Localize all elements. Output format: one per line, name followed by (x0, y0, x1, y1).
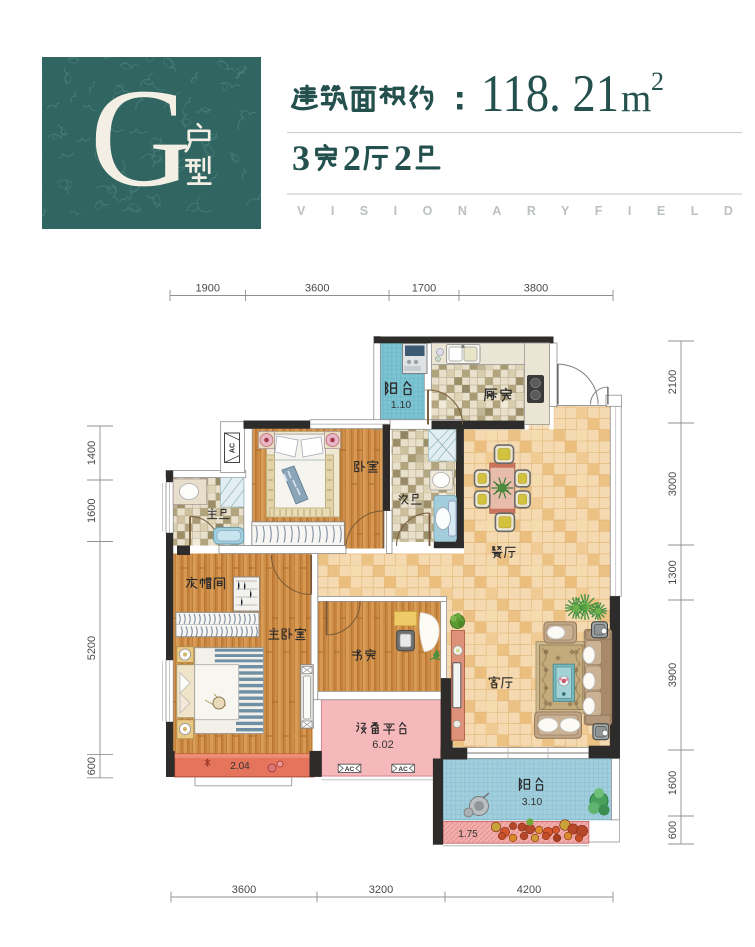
svg-text:1700: 1700 (412, 283, 436, 295)
svg-text:3800: 3800 (524, 283, 548, 295)
svg-text:3600: 3600 (305, 283, 329, 295)
svg-text:AC: AC (398, 766, 408, 773)
svg-text:3: 3 (292, 138, 310, 178)
svg-text:600: 600 (86, 757, 98, 775)
svg-text:3200: 3200 (369, 884, 393, 896)
svg-text:1.75: 1.75 (458, 829, 478, 840)
svg-text:1400: 1400 (86, 441, 98, 465)
svg-text:1600: 1600 (667, 771, 679, 795)
svg-text:2100: 2100 (667, 370, 679, 394)
svg-text:2: 2 (651, 67, 664, 96)
svg-text:2: 2 (394, 138, 412, 178)
svg-text:VISIONARYFIELD: VISIONARYFIELD (297, 204, 755, 218)
svg-text:5200: 5200 (86, 636, 98, 660)
svg-text:4200: 4200 (517, 884, 541, 896)
svg-text:118. 21: 118. 21 (481, 65, 619, 123)
svg-text:1.10: 1.10 (391, 399, 412, 411)
svg-text:1300: 1300 (667, 560, 679, 584)
svg-text:AC: AC (345, 766, 355, 773)
svg-text:3900: 3900 (667, 663, 679, 687)
svg-text:G: G (90, 60, 192, 216)
svg-text:3000: 3000 (667, 472, 679, 496)
svg-text:1600: 1600 (86, 499, 98, 523)
svg-text:2.04: 2.04 (230, 761, 250, 772)
svg-text:m: m (621, 77, 651, 120)
svg-text:3600: 3600 (232, 884, 256, 896)
svg-text:3.10: 3.10 (522, 796, 543, 808)
svg-text:600: 600 (667, 821, 679, 839)
svg-text:6.02: 6.02 (372, 739, 393, 751)
svg-text:AC: AC (230, 443, 237, 453)
svg-text:2: 2 (343, 138, 361, 178)
svg-text:1900: 1900 (196, 283, 220, 295)
